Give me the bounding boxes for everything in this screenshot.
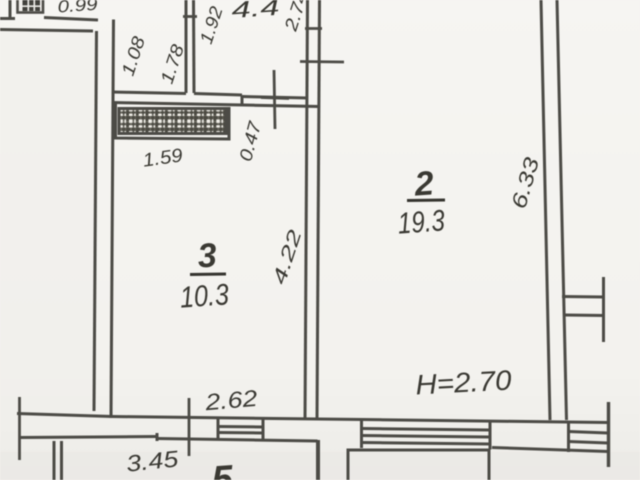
svg-text:10.3: 10.3 xyxy=(179,278,230,314)
svg-text:2.62: 2.62 xyxy=(203,385,258,416)
svg-text:19.3: 19.3 xyxy=(397,204,446,240)
svg-text:3: 3 xyxy=(196,236,218,275)
svg-text:3.45: 3.45 xyxy=(125,445,180,476)
svg-text:2: 2 xyxy=(412,164,435,203)
svg-text:H=2.70: H=2.70 xyxy=(415,365,513,401)
svg-text:4.4: 4.4 xyxy=(231,0,281,23)
svg-text:0.99: 0.99 xyxy=(57,0,99,16)
svg-text:5: 5 xyxy=(210,458,235,480)
